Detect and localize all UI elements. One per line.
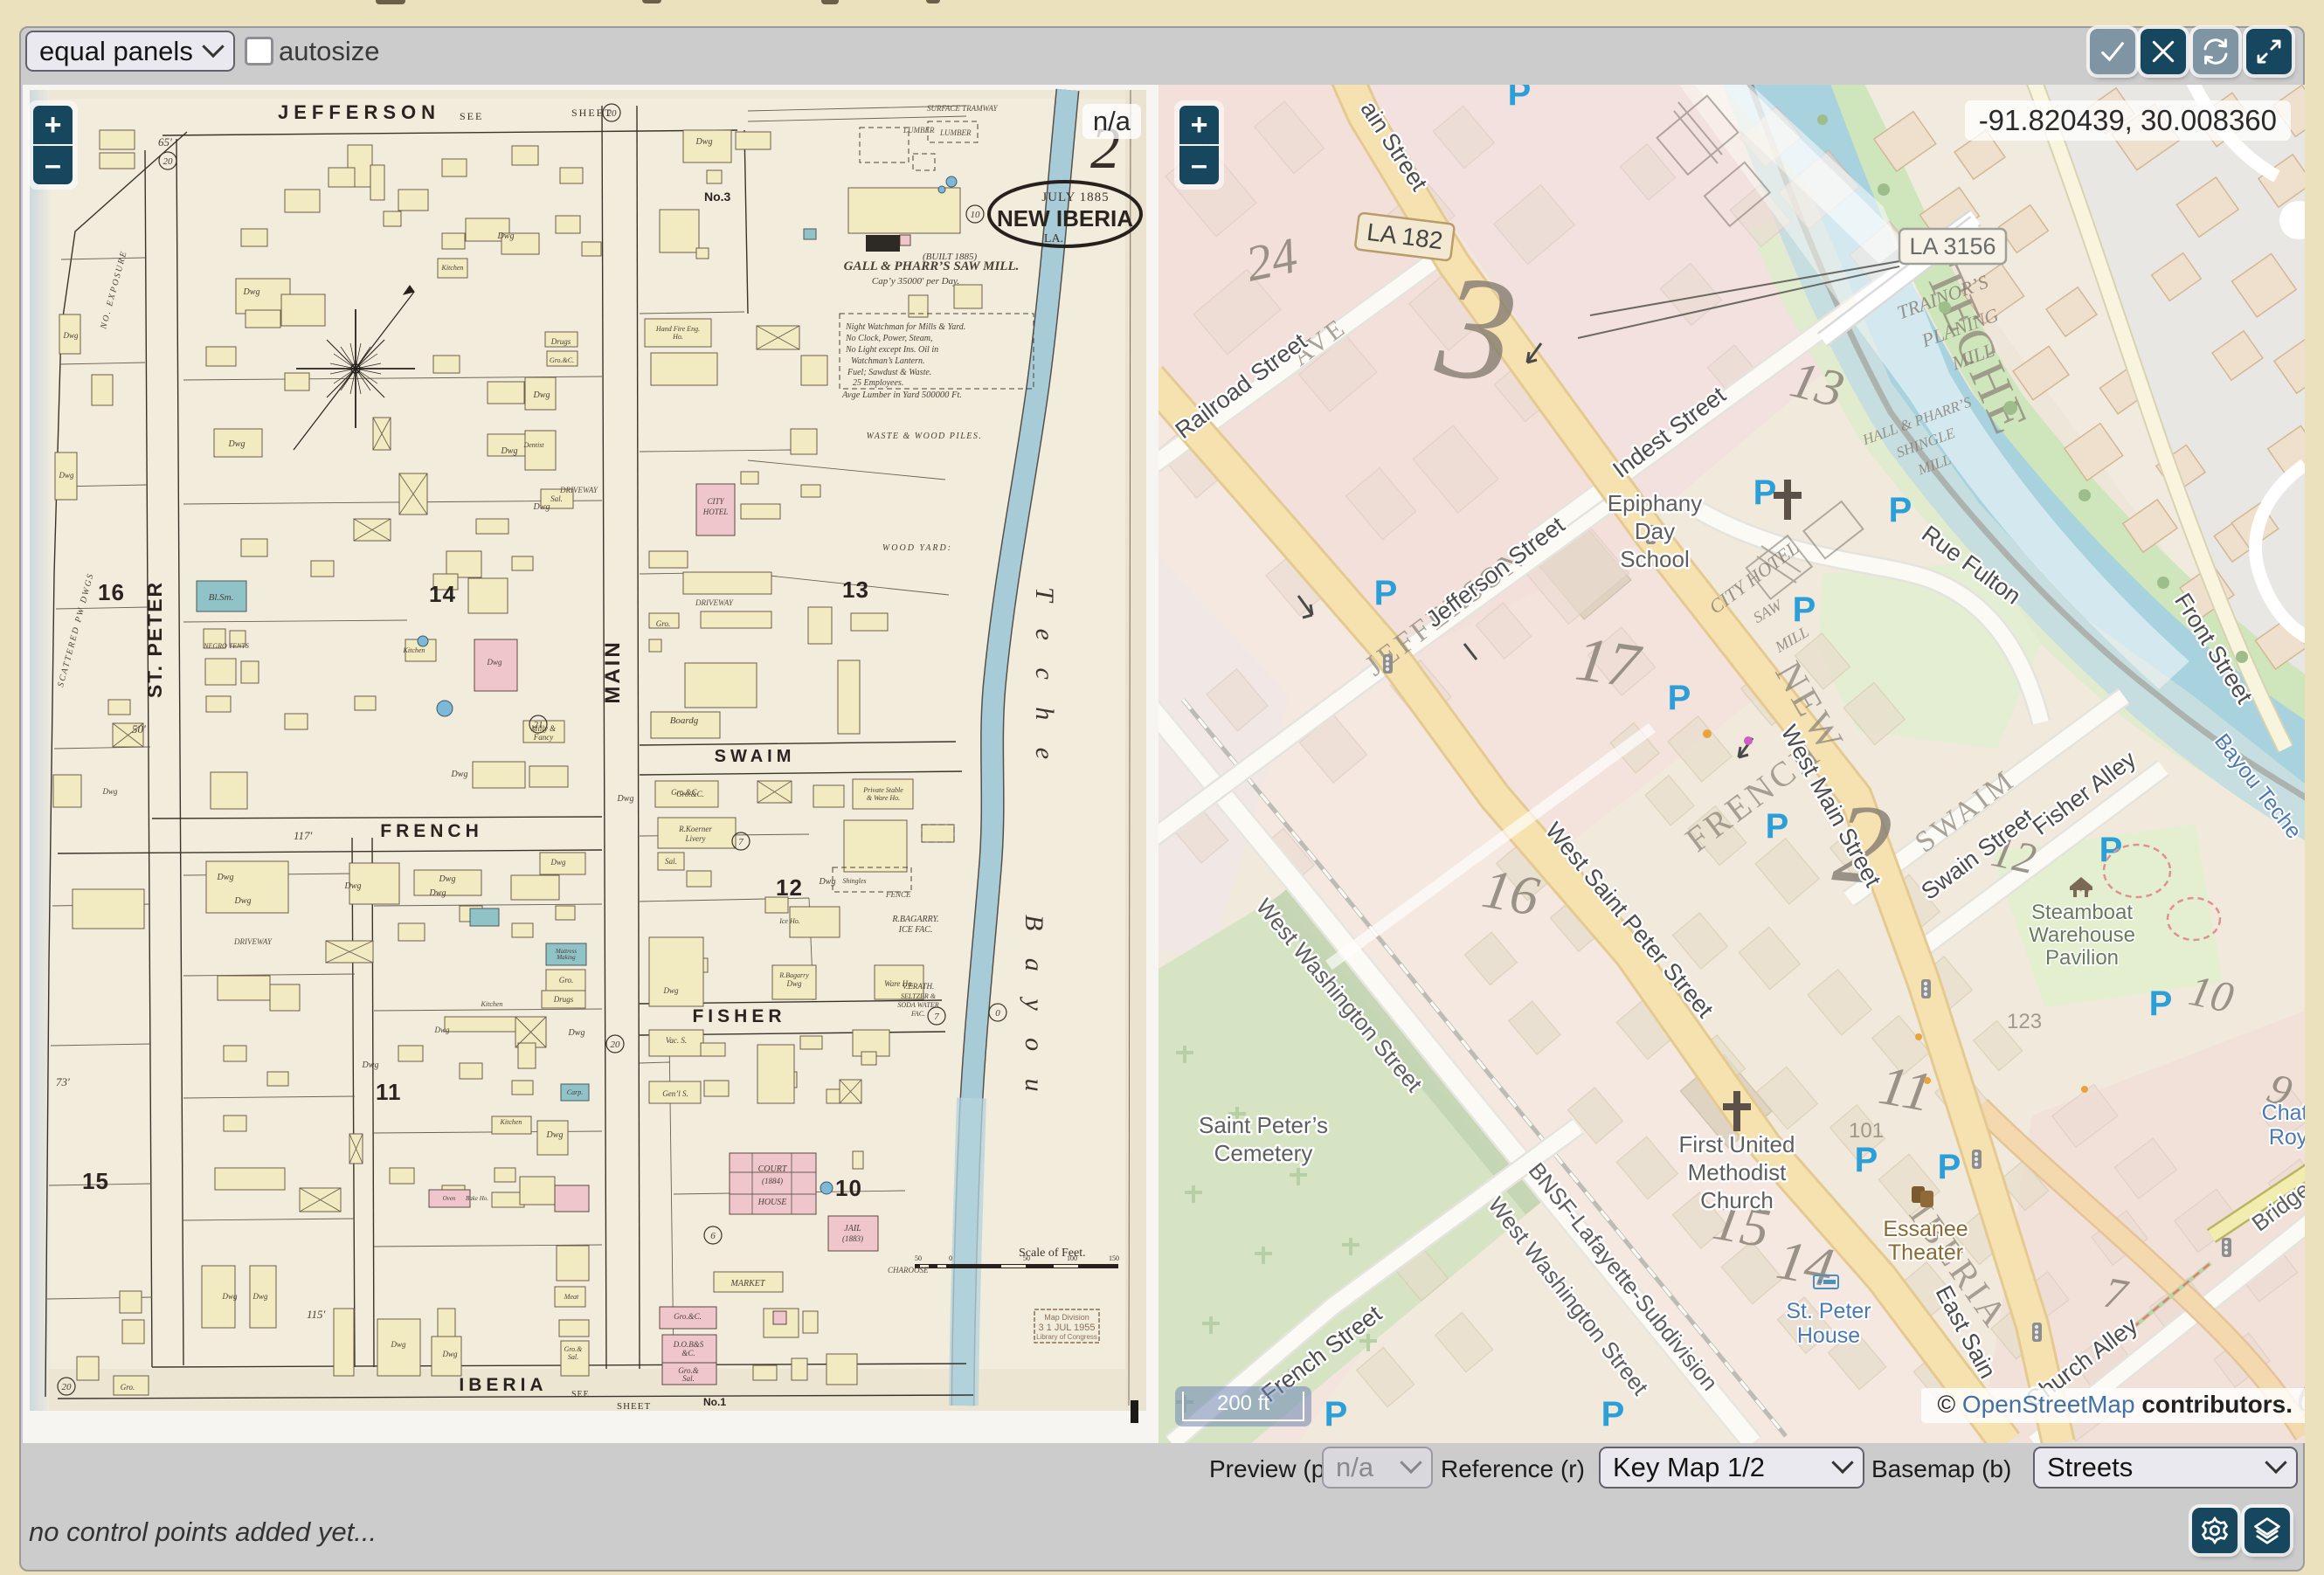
svg-text:P: P	[1793, 591, 1816, 629]
svg-text:6: 6	[710, 1231, 716, 1241]
svg-text:ST. PETER: ST. PETER	[143, 581, 166, 698]
svg-text:Fancy: Fancy	[533, 733, 554, 742]
svg-text:P: P	[1325, 1395, 1348, 1433]
svg-text:Kitchen: Kitchen	[403, 646, 425, 654]
svg-text:Gen’l S.: Gen’l S.	[662, 1089, 688, 1098]
svg-text:HOUSE: HOUSE	[757, 1198, 787, 1207]
svg-text:Dwg: Dwg	[62, 331, 79, 340]
svg-text:Dwg: Dwg	[243, 287, 260, 297]
svg-text:11: 11	[376, 1079, 402, 1105]
svg-text:School: School	[1620, 546, 1690, 572]
svg-text:Dwg: Dwg	[533, 502, 550, 512]
svg-text:WASTE & WOOD PILES.: WASTE & WOOD PILES.	[867, 432, 983, 441]
svg-text:Essanee: Essanee	[1883, 1217, 1968, 1241]
svg-text:Dwg: Dwg	[362, 1060, 379, 1070]
svg-text:50: 50	[915, 1254, 922, 1262]
svg-text:117′: 117′	[294, 829, 313, 842]
svg-text:150: 150	[1109, 1254, 1119, 1262]
svg-text:Map Division: Map Division	[1044, 1313, 1089, 1322]
svg-text:Day: Day	[1635, 518, 1675, 544]
svg-text:FENCE: FENCE	[885, 890, 911, 899]
svg-text:10: 10	[835, 1175, 862, 1201]
svg-text:Epiphany: Epiphany	[1608, 490, 1702, 516]
svg-text:Dwg: Dwg	[439, 874, 456, 884]
svg-text:Oven: Oven	[443, 1195, 456, 1202]
svg-text:No.1: No.1	[703, 1396, 726, 1408]
svg-text:Sal.: Sal.	[665, 857, 677, 866]
svg-text:123: 123	[2007, 1010, 2042, 1033]
svg-text:Livery: Livery	[685, 834, 706, 843]
svg-text:Dwg: Dwg	[501, 446, 518, 456]
svg-text:Dwg: Dwg	[695, 137, 713, 147]
svg-text:Warehouse: Warehouse	[2029, 923, 2135, 947]
svg-text:20: 20	[163, 156, 174, 167]
svg-text:(1884): (1884)	[762, 1177, 783, 1185]
svg-text:Carp.: Carp.	[567, 1088, 583, 1096]
svg-text:Dwg: Dwg	[819, 877, 836, 887]
svg-text:Sal.: Sal.	[682, 1374, 695, 1383]
svg-text:Dwg: Dwg	[217, 873, 234, 882]
svg-text:HOTEL: HOTEL	[702, 508, 729, 516]
svg-text:65′: 65′	[158, 135, 172, 149]
svg-text:No.3: No.3	[704, 190, 731, 204]
svg-text:Chate: Chate	[2262, 1101, 2305, 1125]
svg-text:CITY: CITY	[707, 497, 724, 506]
svg-text:P: P	[1766, 807, 1789, 846]
svg-text:Dwg: Dwg	[486, 658, 502, 667]
svg-text:SWAIM: SWAIM	[715, 747, 796, 766]
svg-text:DRIVEWAY: DRIVEWAY	[559, 486, 598, 494]
svg-text:Kitchen: Kitchen	[441, 264, 464, 272]
svg-text:Gro.&: Gro.&	[564, 1345, 584, 1353]
svg-text:SEE: SEE	[460, 110, 483, 122]
svg-text:16: 16	[98, 579, 125, 605]
svg-text:SELTZER &: SELTZER &	[901, 992, 937, 1000]
svg-text:P: P	[1668, 679, 1691, 717]
svg-text:P: P	[1753, 473, 1777, 512]
svg-text:100: 100	[1067, 1254, 1077, 1262]
svg-text:Dwg: Dwg	[58, 471, 74, 480]
svg-text:St. Peter: St. Peter	[1786, 1299, 1871, 1323]
svg-text:Sal.: Sal.	[550, 494, 563, 503]
svg-text:JEFFERSON: JEFFERSON	[278, 101, 440, 123]
svg-text:Dwg: Dwg	[234, 896, 252, 906]
svg-text:Hand Fire Eng.: Hand Fire Eng.	[655, 325, 700, 333]
svg-text:Gro.: Gro.	[559, 976, 573, 984]
svg-text:Gro.: Gro.	[656, 619, 670, 628]
svg-text:(1883): (1883)	[842, 1234, 863, 1243]
svg-text:Library of Congress: Library of Congress	[1036, 1333, 1097, 1341]
svg-text:FAC.: FAC.	[910, 1010, 925, 1018]
svg-text:LUMBER: LUMBER	[939, 128, 972, 137]
svg-text:NEGRO TENTS: NEGRO TENTS	[203, 642, 249, 650]
svg-text:Vac. S.: Vac. S.	[666, 1036, 687, 1045]
svg-text:Dwg: Dwg	[533, 390, 550, 400]
svg-text:Dwg: Dwg	[441, 1350, 458, 1358]
svg-text:SURFACE TRAMWAY: SURFACE TRAMWAY	[927, 104, 998, 113]
svg-text:Dwg: Dwg	[550, 858, 566, 867]
svg-text:Dwg: Dwg	[617, 794, 634, 804]
svg-text:JAIL: JAIL	[844, 1224, 861, 1233]
svg-text:Bake Ho.: Bake Ho.	[466, 1195, 488, 1202]
svg-text:MARKET: MARKET	[730, 1279, 766, 1288]
svg-text:Methodist: Methodist	[1688, 1159, 1787, 1185]
svg-text:MAIN: MAIN	[601, 639, 625, 703]
svg-text:Dwg: Dwg	[568, 1028, 585, 1038]
svg-text:Ice Ho.: Ice Ho.	[778, 917, 800, 925]
svg-text:P: P	[1855, 1141, 1878, 1179]
svg-text:LA.: LA.	[1044, 232, 1063, 245]
svg-text:Milly &: Milly &	[530, 724, 556, 733]
svg-text:Steamboat: Steamboat	[2031, 901, 2133, 924]
svg-text:Drugs: Drugs	[553, 995, 574, 1004]
svg-text:LUMBER: LUMBER	[903, 126, 935, 135]
svg-text:17: 17	[1572, 624, 1646, 702]
svg-text:13: 13	[842, 577, 869, 603]
svg-text:Private Stable: Private Stable	[862, 786, 903, 794]
svg-text:FRENCH: FRENCH	[380, 821, 483, 841]
svg-text:Theater: Theater	[1888, 1240, 1963, 1265]
svg-text:7: 7	[738, 837, 744, 847]
svg-text:IBERIA: IBERIA	[459, 1375, 547, 1395]
svg-text:CHAROOSE: CHAROOSE	[888, 1266, 929, 1275]
svg-text:Dwg: Dwg	[252, 1292, 268, 1301]
svg-text:Bl.Sm.: Bl.Sm.	[209, 592, 234, 603]
svg-text:D.O.B&S: D.O.B&S	[673, 1340, 704, 1349]
svg-text:Cap’y 35000′ per Day.: Cap’y 35000′ per Day.	[872, 276, 959, 287]
svg-text:SODA WATER: SODA WATER	[897, 1001, 938, 1009]
svg-text:JULY 1885: JULY 1885	[1041, 190, 1109, 204]
svg-text:Dwg: Dwg	[101, 787, 118, 796]
svg-text:Dwg: Dwg	[451, 770, 468, 779]
svg-text:3 1 JUL 1955: 3 1 JUL 1955	[1038, 1323, 1095, 1333]
svg-text:&C.: &C.	[681, 1349, 695, 1357]
svg-text:7: 7	[934, 1012, 939, 1022]
svg-text:B a y o u: B a y o u	[1020, 915, 1048, 1102]
svg-text:COURT: COURT	[758, 1164, 788, 1174]
svg-text:Sal.: Sal.	[568, 1353, 578, 1361]
svg-text:P: P	[1601, 1395, 1625, 1433]
svg-text:LA 3156: LA 3156	[1909, 233, 1995, 259]
svg-text:50′: 50′	[132, 722, 146, 736]
svg-text:15: 15	[82, 1168, 109, 1194]
svg-text:115′: 115′	[307, 1308, 326, 1321]
svg-text:No Clock, Power, Steam,: No Clock, Power, Steam,	[845, 334, 932, 343]
svg-text:R.Bagarry: R.Bagarry	[778, 971, 809, 979]
svg-text:Dentist: Dentist	[522, 441, 544, 449]
svg-text:Dwg: Dwg	[662, 986, 679, 995]
svg-text:11: 11	[1875, 1053, 1937, 1123]
svg-text:0: 0	[995, 1008, 1000, 1019]
svg-text:P: P	[1938, 1148, 1961, 1186]
svg-text:Fuel; Sawdust & Waste.: Fuel; Sawdust & Waste.	[847, 368, 931, 377]
svg-text:50: 50	[1023, 1254, 1030, 1262]
svg-text:Meat: Meat	[564, 1293, 579, 1301]
svg-text:Gro.&C.: Gro.&C.	[674, 1312, 702, 1321]
svg-text:Dwg: Dwg	[390, 1340, 406, 1349]
svg-text:10: 10	[971, 210, 981, 220]
svg-text:Dwg: Dwg	[497, 231, 515, 241]
svg-text:R.Koerner: R.Koerner	[678, 825, 712, 833]
svg-text:Drugs: Drugs	[550, 337, 571, 346]
svg-text:ICE FAC.: ICE FAC.	[898, 925, 933, 935]
svg-text:Dwg: Dwg	[429, 888, 446, 898]
svg-text:Ware Ho.: Ware Ho.	[884, 979, 914, 988]
svg-text:P: P	[1374, 574, 1398, 612]
svg-text:DRIVEWAY: DRIVEWAY	[233, 937, 273, 946]
svg-text:Cemetery: Cemetery	[1214, 1140, 1313, 1166]
svg-text:20: 20	[607, 108, 618, 119]
svg-text:Roya: Roya	[2269, 1125, 2305, 1150]
svg-text:P: P	[2149, 984, 2173, 1023]
svg-text:25 Employees.: 25 Employees.	[853, 378, 903, 388]
svg-text:WOOD YARD:: WOOD YARD:	[882, 543, 952, 553]
svg-text:Shingles: Shingles	[842, 877, 866, 885]
svg-text:16: 16	[1478, 857, 1544, 928]
svg-text:NEW IBERIA: NEW IBERIA	[997, 205, 1133, 231]
svg-text:Church: Church	[1700, 1187, 1774, 1213]
svg-text:Gro.&C.: Gro.&C.	[676, 790, 704, 798]
svg-text:SHEET: SHEET	[617, 1401, 651, 1412]
svg-text:Gro.: Gro.	[121, 1383, 135, 1392]
svg-text:SEE: SEE	[571, 1390, 590, 1399]
svg-text:P: P	[1508, 85, 1532, 113]
svg-text:Saint Peter’s: Saint Peter’s	[1199, 1112, 1328, 1138]
svg-text:Dwg: Dwg	[785, 979, 802, 988]
svg-text:Avge Lumber in Yard 500000 Ft.: Avge Lumber in Yard 500000 Ft.	[841, 390, 962, 400]
svg-text:House: House	[1797, 1323, 1860, 1348]
svg-text:R.BAGARRY.: R.BAGARRY.	[891, 915, 938, 924]
svg-text:Ho.: Ho.	[672, 333, 683, 341]
svg-text:Dwg: Dwg	[546, 1130, 564, 1140]
svg-text:12: 12	[776, 874, 803, 901]
svg-text:No Light except Ins. Oil in: No Light except Ins. Oil in	[845, 345, 938, 355]
svg-text:Boardg: Boardg	[670, 715, 699, 726]
svg-text:Dwg: Dwg	[344, 881, 362, 891]
svg-text:(BUILT 1885): (BUILT 1885)	[923, 252, 978, 262]
svg-text:FISHER: FISHER	[692, 1006, 785, 1026]
svg-text:Watchman’s Lantern.: Watchman’s Lantern.	[851, 356, 924, 366]
svg-text:73′: 73′	[56, 1075, 70, 1088]
svg-text:Making: Making	[556, 954, 576, 961]
svg-text:14: 14	[429, 581, 456, 607]
svg-text:0: 0	[949, 1254, 952, 1262]
svg-text:& Ware Ho.: & Ware Ho.	[867, 794, 900, 802]
svg-text:Dwg: Dwg	[221, 1292, 238, 1301]
svg-text:Dwg: Dwg	[228, 439, 246, 449]
svg-text:Kitchen: Kitchen	[500, 1118, 522, 1126]
svg-text:First United: First United	[1679, 1131, 1795, 1157]
svg-text:DRIVEWAY: DRIVEWAY	[695, 598, 734, 607]
svg-text:Pavilion: Pavilion	[2045, 946, 2119, 970]
svg-text:T e c h e: T e c h e	[1030, 587, 1059, 770]
svg-text:P: P	[1889, 491, 1912, 529]
svg-text:101: 101	[1849, 1119, 1884, 1143]
svg-text:Night Watchman for Mills & Yar: Night Watchman for Mills & Yard.	[845, 322, 965, 332]
svg-text:20: 20	[62, 1382, 73, 1392]
svg-text:Kitchen: Kitchen	[481, 1000, 503, 1008]
svg-text:20: 20	[611, 1040, 621, 1050]
svg-text:Dwg: Dwg	[433, 1026, 450, 1034]
svg-text:Gro.&C.: Gro.&C.	[550, 356, 574, 364]
